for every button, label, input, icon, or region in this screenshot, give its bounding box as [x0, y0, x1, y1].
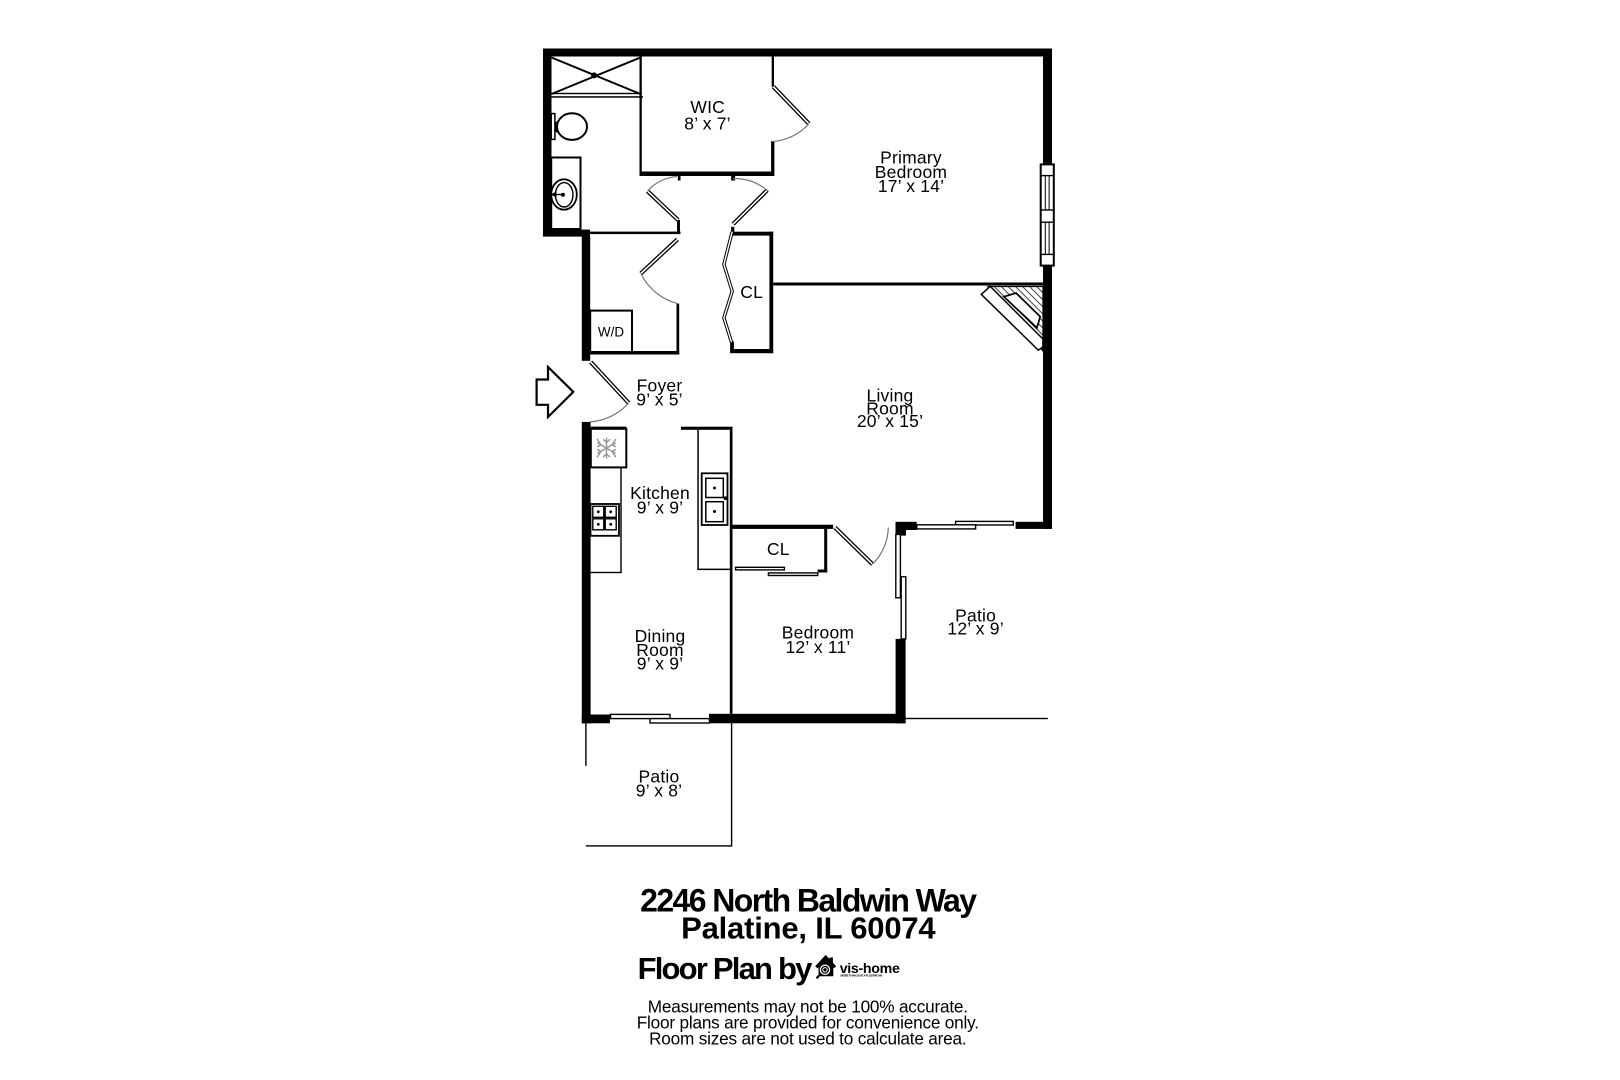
svg-text:9’ x 8’: 9’ x 8’ — [636, 781, 682, 801]
svg-text:Room sizes are not used to cal: Room sizes are not used to calculate are… — [649, 1028, 966, 1048]
svg-text:9’ x 9’: 9’ x 9’ — [637, 654, 683, 674]
svg-text:12’ x 9’: 12’ x 9’ — [947, 619, 1003, 639]
svg-text:Floor Plan by: Floor Plan by — [638, 951, 814, 986]
svg-text:20’ x 15’: 20’ x 15’ — [857, 411, 923, 431]
svg-text:8’ x 7’: 8’ x 7’ — [684, 114, 730, 134]
svg-text:MORE THAN JUST A FLOORPLAN: MORE THAN JUST A FLOORPLAN — [841, 973, 883, 977]
svg-text:12’ x 11’: 12’ x 11’ — [785, 637, 850, 657]
svg-text:9’ x 5’: 9’ x 5’ — [636, 389, 682, 409]
svg-text:9’ x 9’: 9’ x 9’ — [637, 498, 683, 518]
svg-text:17’ x 14’: 17’ x 14’ — [878, 176, 944, 196]
svg-text:CL: CL — [767, 539, 790, 559]
svg-text:W/D: W/D — [598, 325, 624, 340]
svg-text:CL: CL — [740, 282, 763, 302]
svg-text:Palatine, IL 60074: Palatine, IL 60074 — [681, 910, 936, 945]
